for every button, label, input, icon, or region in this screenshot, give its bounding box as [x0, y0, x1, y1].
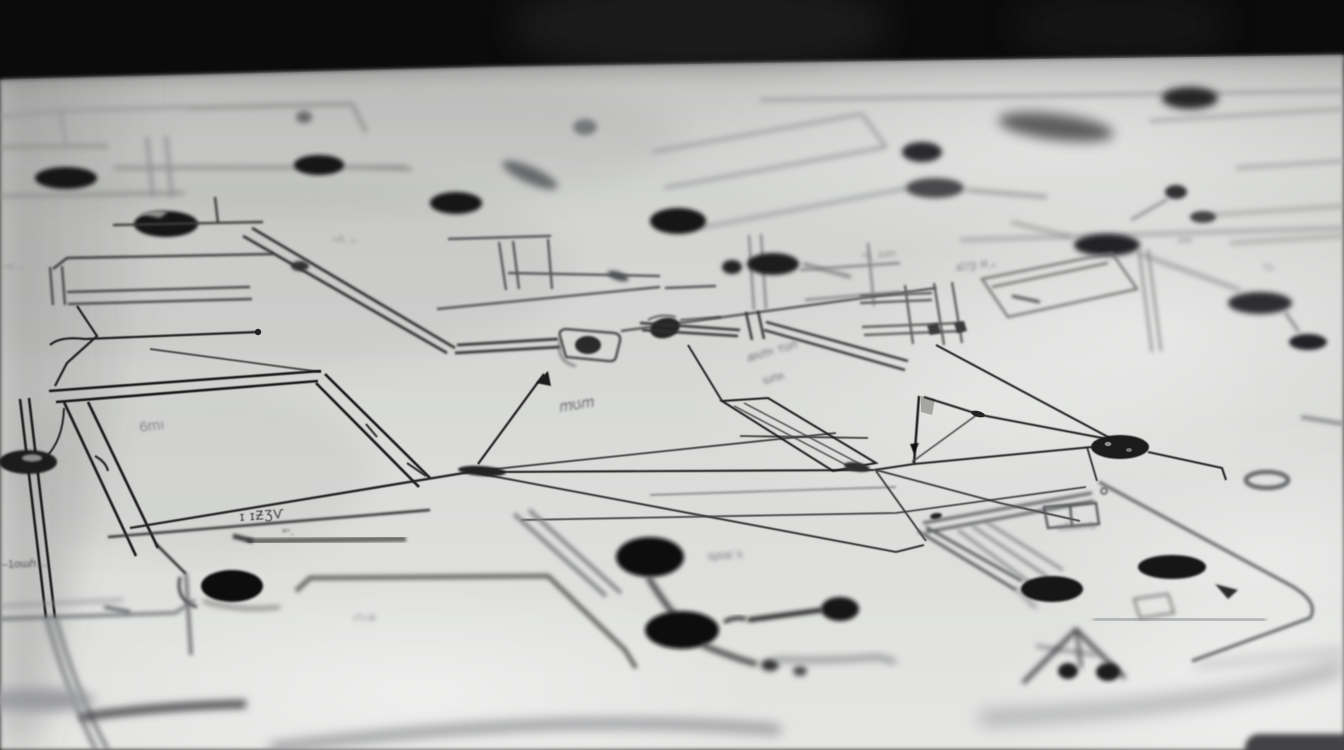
svg-text:4㎜: 4㎜ [1176, 235, 1192, 247]
svg-text:6mı: 6mı [138, 416, 165, 436]
svg-text:⌣ь‧…: ⌣ь‧… [2, 260, 27, 272]
svg-text:‹²‹›ə: ‹²‹›ə [352, 610, 376, 625]
svg-text:≈ñ. ₁₂: ≈ñ. ₁₂ [333, 234, 358, 246]
svg-text:⇐ˍ: ⇐ˍ [281, 525, 294, 537]
svg-text:ѕρʊɛʿѕ: ѕρʊɛʿѕ [707, 547, 743, 563]
svg-text:²2›: ²2› [1262, 262, 1275, 274]
svg-text:‒1оɯℎ…: ‒1оɯℎ… [2, 557, 48, 571]
